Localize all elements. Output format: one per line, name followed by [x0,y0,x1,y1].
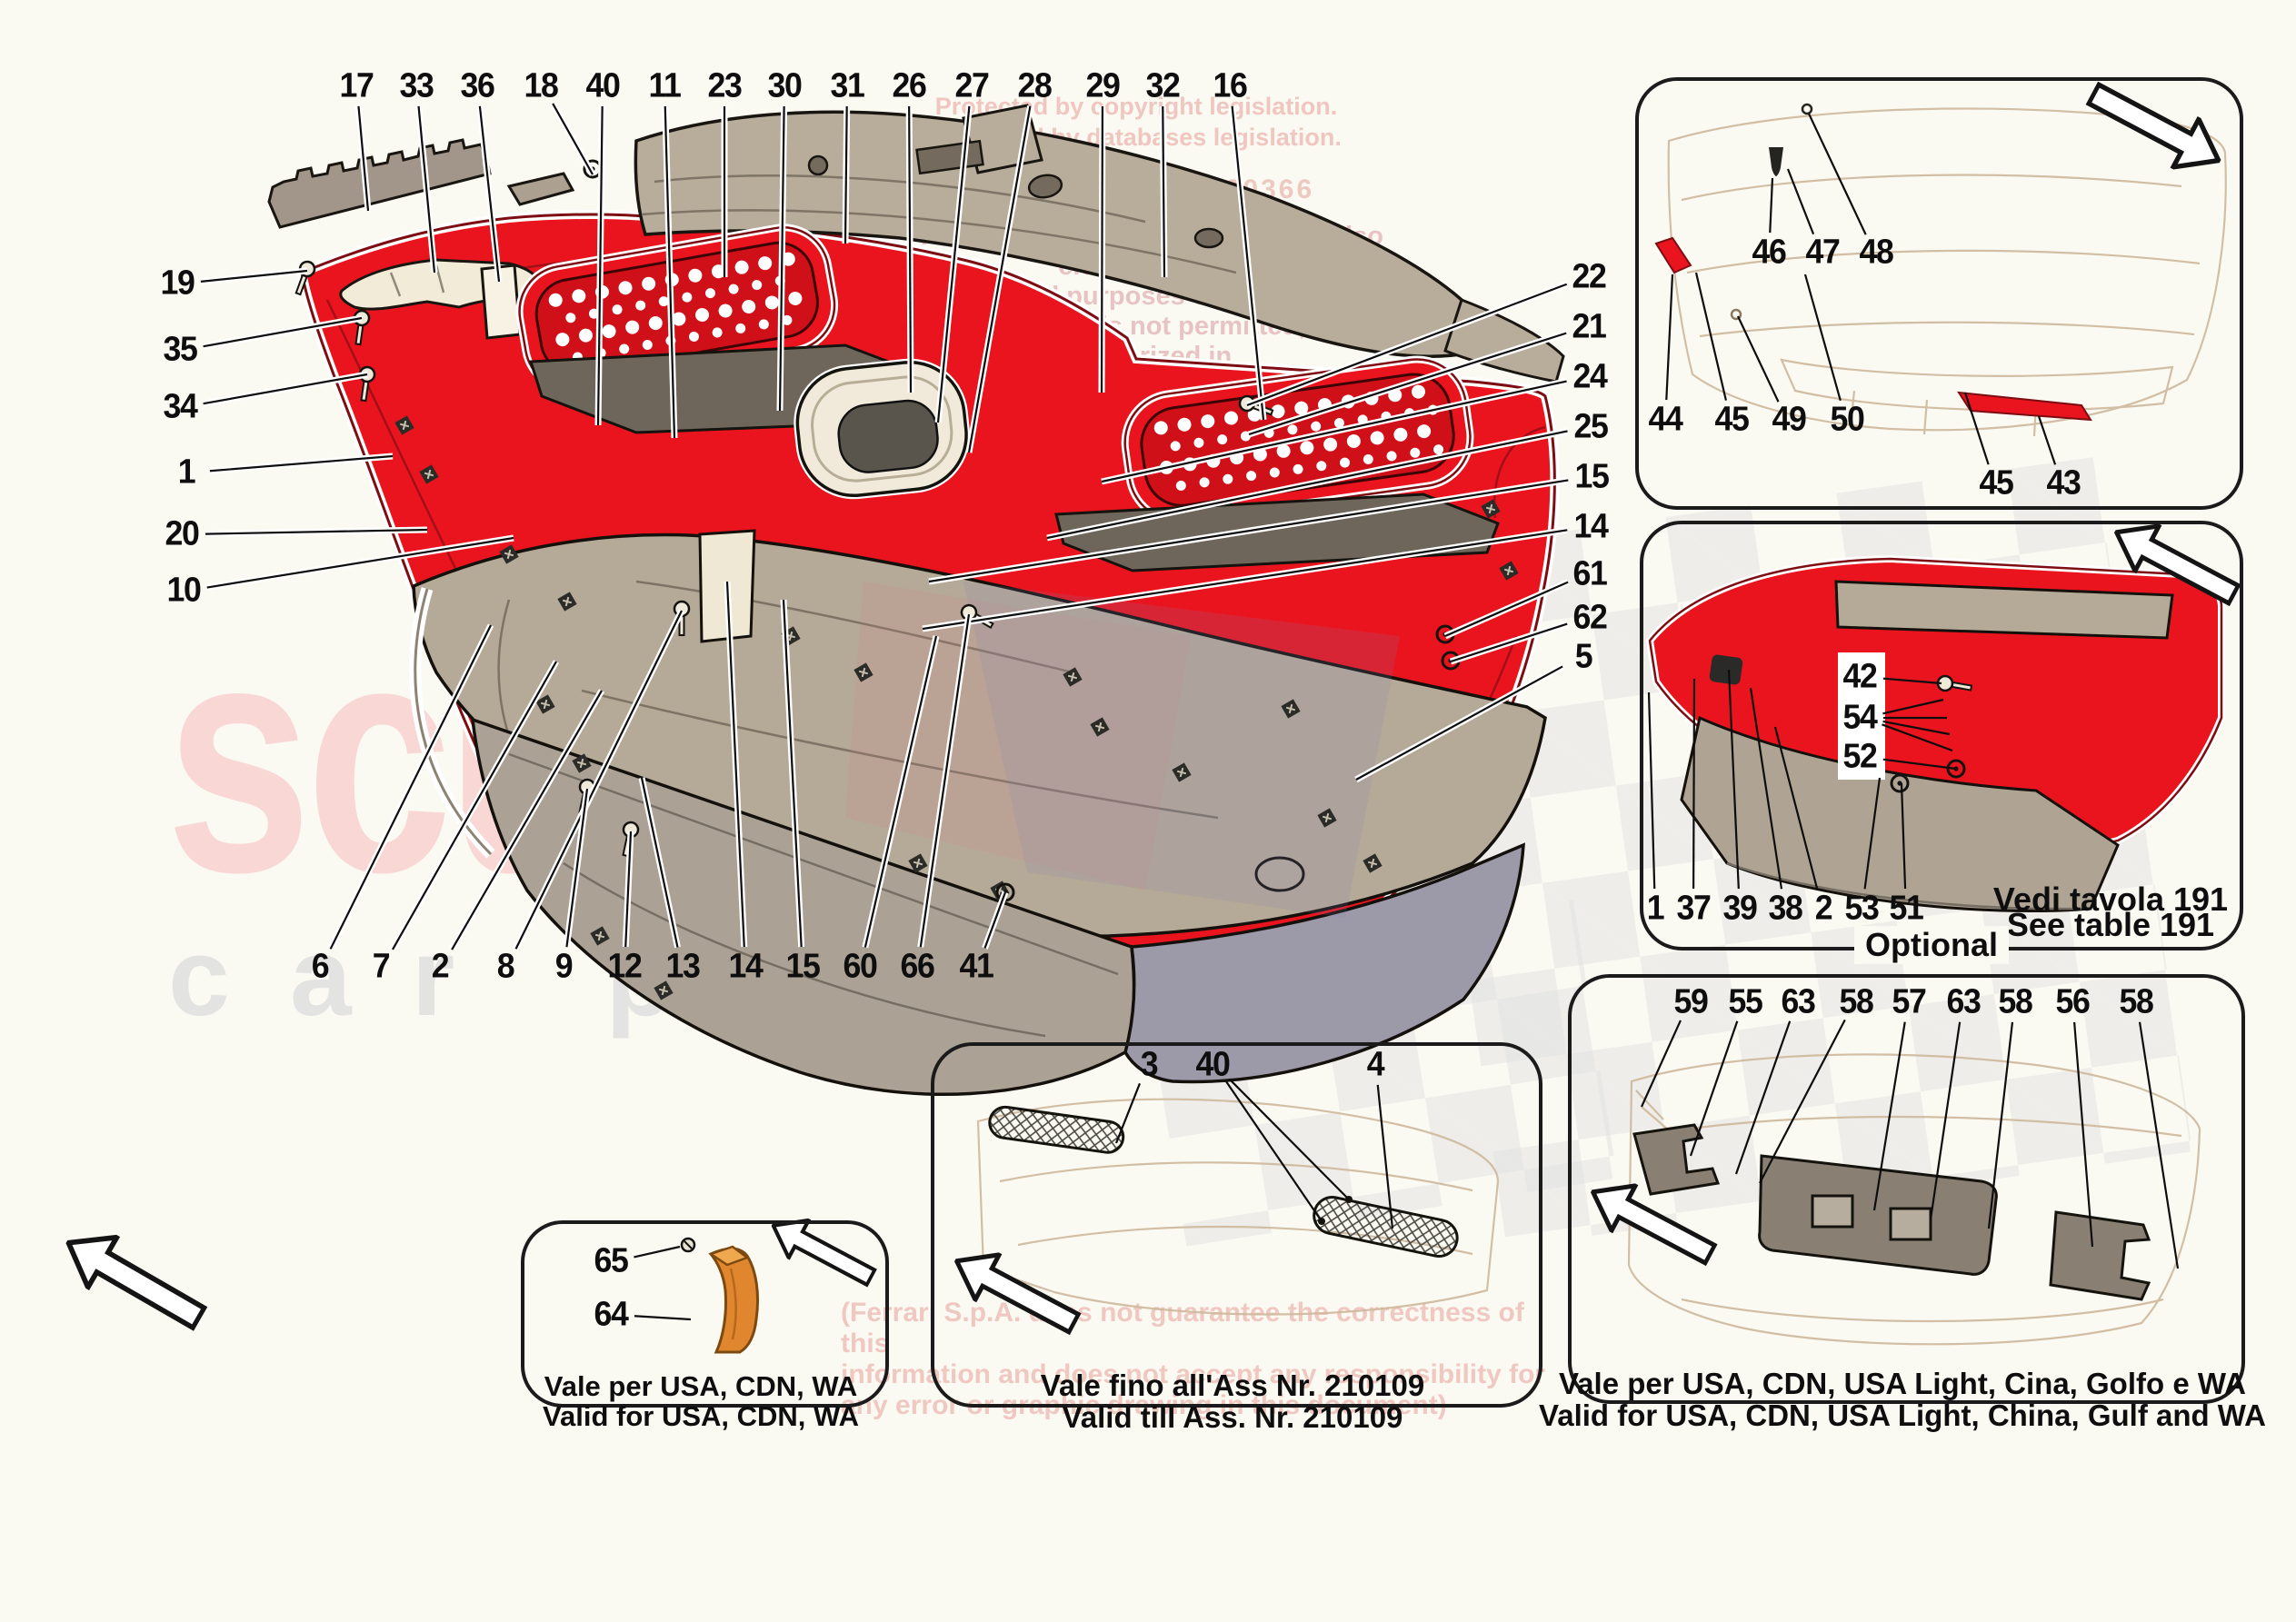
inset-box-assembly-limit [931,1042,1542,1408]
mounting-strip [269,140,490,227]
inset-box-rear-view [1635,77,2243,510]
inset-box-usa-reflector [521,1220,889,1408]
inset-box-optional [1640,521,2243,950]
inset-box-usa-versions [1568,974,2245,1404]
parts-catalog-page: scuderia car parts Protected by copyrigh… [0,0,2296,1622]
direction-arrow-icon [54,1218,213,1343]
